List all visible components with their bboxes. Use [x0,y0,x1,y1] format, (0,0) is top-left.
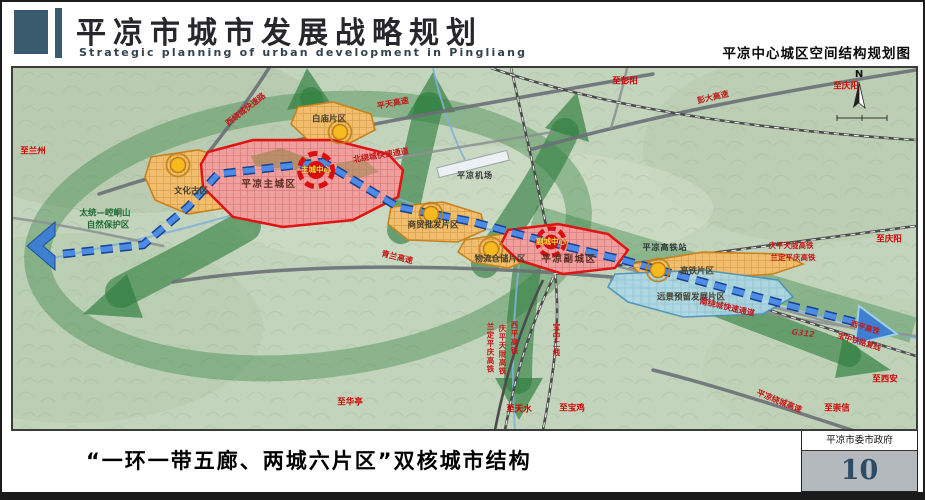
map-label: 太统—崆峒山 [79,210,130,219]
map-label: 宝中二线 [552,323,560,357]
map-label: 副城中心 [536,238,566,246]
page-number: 10 [802,451,917,491]
map-label: 西平高铁 [510,321,518,355]
map-label: 商贸批发片区 [407,222,458,231]
map-label: 高铁片区 [680,268,714,277]
map-label: 自然保护区 [87,222,130,231]
map-label: 至宝鸡 [559,405,585,414]
map-label: 西平高铁 [850,320,881,336]
map-label: 兰定平庆高铁 [486,323,494,374]
map-label: 至华亭 [337,399,363,408]
map-label: G312 [791,328,815,339]
map-label: 白庙片区 [312,116,346,125]
map-labels: 至兰州西绕城快速路平天高速至彭阳彭大高速至庆阳白庙片区北绕城快速通道平凉机场平凉… [13,68,916,429]
map-title: 平凉中心城区空间结构规划图 [723,42,912,62]
map-label: 庆平天陇高铁 [769,242,814,250]
map-label: 至天水 [506,406,532,415]
map-label: 主城中心 [301,166,331,174]
map-label: 至庆阳 [876,236,902,245]
plan-page: 平凉市城市发展战略规划 Strategic planning of urban … [0,0,925,500]
map-label: 至庆阳 [833,83,859,92]
map-label: 平天高速 [376,97,409,111]
map-label: 至崇信 [824,405,850,414]
logo-divider-bar [55,8,62,58]
map-label: 宝中铁路复线 [836,332,881,353]
info-box: 平凉市委市政府 10 [801,431,918,492]
map-label: 青兰高速 [380,250,413,266]
map-label: 北绕城快速通道 [353,147,410,164]
map-label: 文化古区 [174,188,208,197]
map-label: 兰定平庆高铁 [771,254,816,262]
map-label: 远景预留发展片区 [657,294,725,303]
map-label: 平凉副城区 [541,255,596,265]
map-label: 南绕城快速通道 [699,298,755,319]
map-label: 平凉主城区 [241,180,296,190]
map-label: N [855,70,863,81]
map-label: 至西安 [872,376,898,385]
map-label: 庆平天陇高铁 [498,325,506,376]
map-label: 彭大高速 [696,90,729,105]
map-label: 西绕城快速路 [225,92,268,128]
bottom-rule [2,492,923,498]
map-label: 平凉高铁站 [643,244,688,252]
structure-caption: “一环一带五廊、两城六片区”双核城市结构 [86,445,532,475]
map-label: 至兰州 [20,148,46,157]
logo-square [14,10,48,54]
map-label: 平凉机场 [457,172,493,180]
map-label: 物流仓储片区 [474,256,525,265]
map-label: 平凉绕城高速 [755,389,803,415]
planning-map: 至兰州西绕城快速路平天高速至彭阳彭大高速至庆阳白庙片区北绕城快速通道平凉机场平凉… [11,66,918,431]
page-subtitle-en: Strategic planning of urban development … [79,46,527,59]
map-label: 至彭阳 [612,78,638,87]
authority-label: 平凉市委市政府 [802,431,917,451]
